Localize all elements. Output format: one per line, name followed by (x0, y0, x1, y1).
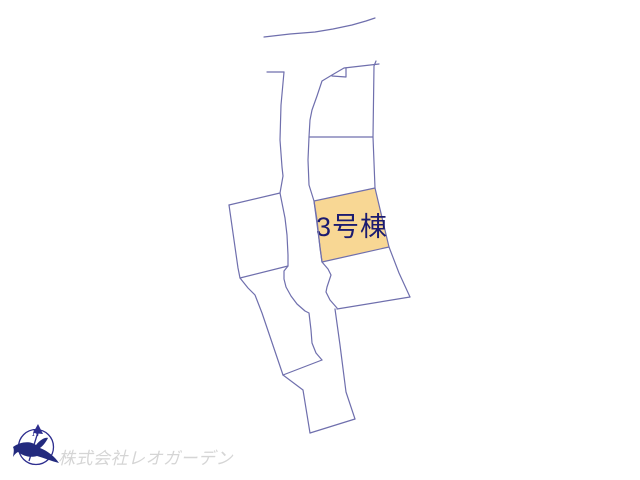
highlighted-parcel-label: 3号棟 (316, 212, 388, 242)
site-plan-canvas: 3号棟 (0, 0, 640, 480)
road-right-edge-line (308, 64, 379, 308)
neck-diagonal-line (283, 360, 322, 375)
left-block-divider-line (240, 266, 288, 278)
highlighted-parcel: 3号棟 (314, 188, 389, 262)
flag-lot-left-line (283, 375, 310, 433)
top-road-curve-line (264, 18, 375, 37)
right-boundary-upper-line (373, 61, 376, 188)
right-boundary-lower-line (389, 247, 410, 297)
left-parcel-top-line (229, 193, 280, 205)
site-plan-page: 3号棟 (0, 0, 640, 480)
lower-right-diagonal-line (337, 297, 410, 309)
flag-lot-right-line (335, 309, 355, 419)
compass-icon: N (13, 424, 59, 465)
compass-north-label: N (31, 427, 41, 439)
company-name-label: 株式会社レオガーデン (58, 449, 233, 468)
left-boundary-line (229, 205, 283, 375)
flag-lot-bottom-line (310, 419, 355, 433)
top-edge-notch-line (332, 68, 346, 77)
